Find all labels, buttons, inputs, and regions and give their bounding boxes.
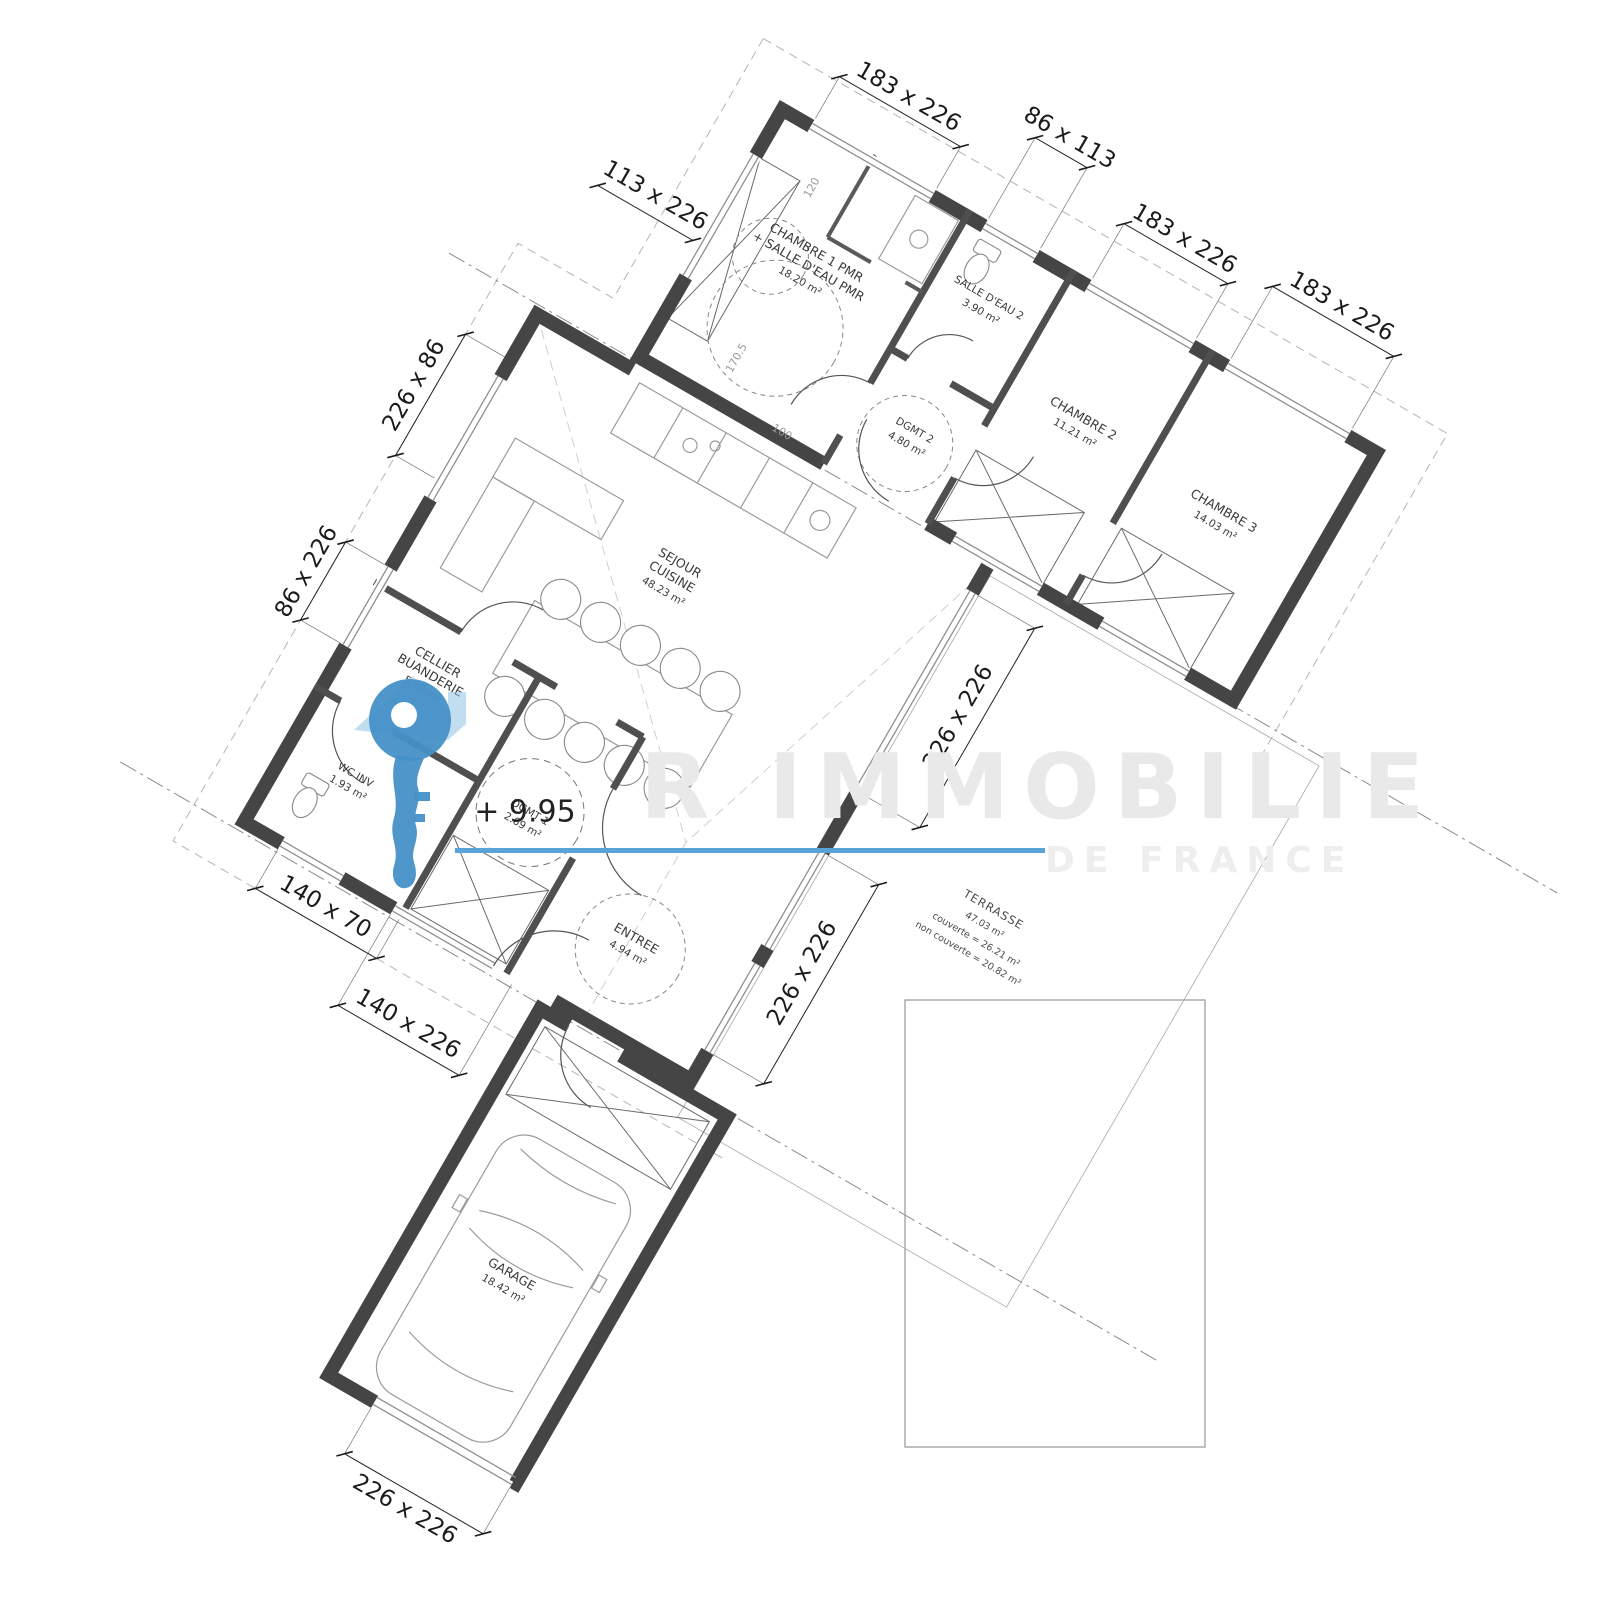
watermark-underline (455, 848, 1045, 853)
dim-label-west3: 86 x 226 (270, 521, 343, 622)
toilet-wc (286, 772, 331, 823)
sofa (440, 438, 623, 630)
closet-dgmt1 (411, 835, 549, 964)
dim-label-top1: 183 x 226 (852, 57, 965, 138)
floor-plan-canvas: 183 x 226 86 x 113 183 x 226 183 x 226 1… (0, 0, 1600, 1600)
dim-label-garage-door: 226 x 226 (348, 1469, 461, 1550)
elevation-value: + 9.95 (474, 794, 575, 829)
bed-chambre3 (1077, 528, 1234, 669)
watermark-text-line2: DE FRANCE (1045, 840, 1354, 881)
dim-label-west2: 226 x 86 (377, 335, 450, 436)
ceiling-lines (244, 314, 984, 1079)
dim-label-top4: 183 x 226 (1285, 266, 1398, 347)
watermark-text-line1: R IMMOBILIE (640, 735, 1438, 840)
dim-label-sw2: 140 x 226 (351, 984, 464, 1065)
dim-label-top3: 183 x 226 (1128, 199, 1241, 280)
small-dim-120: 120 (801, 175, 823, 200)
small-dim-170-5: 170.5 (723, 341, 750, 375)
